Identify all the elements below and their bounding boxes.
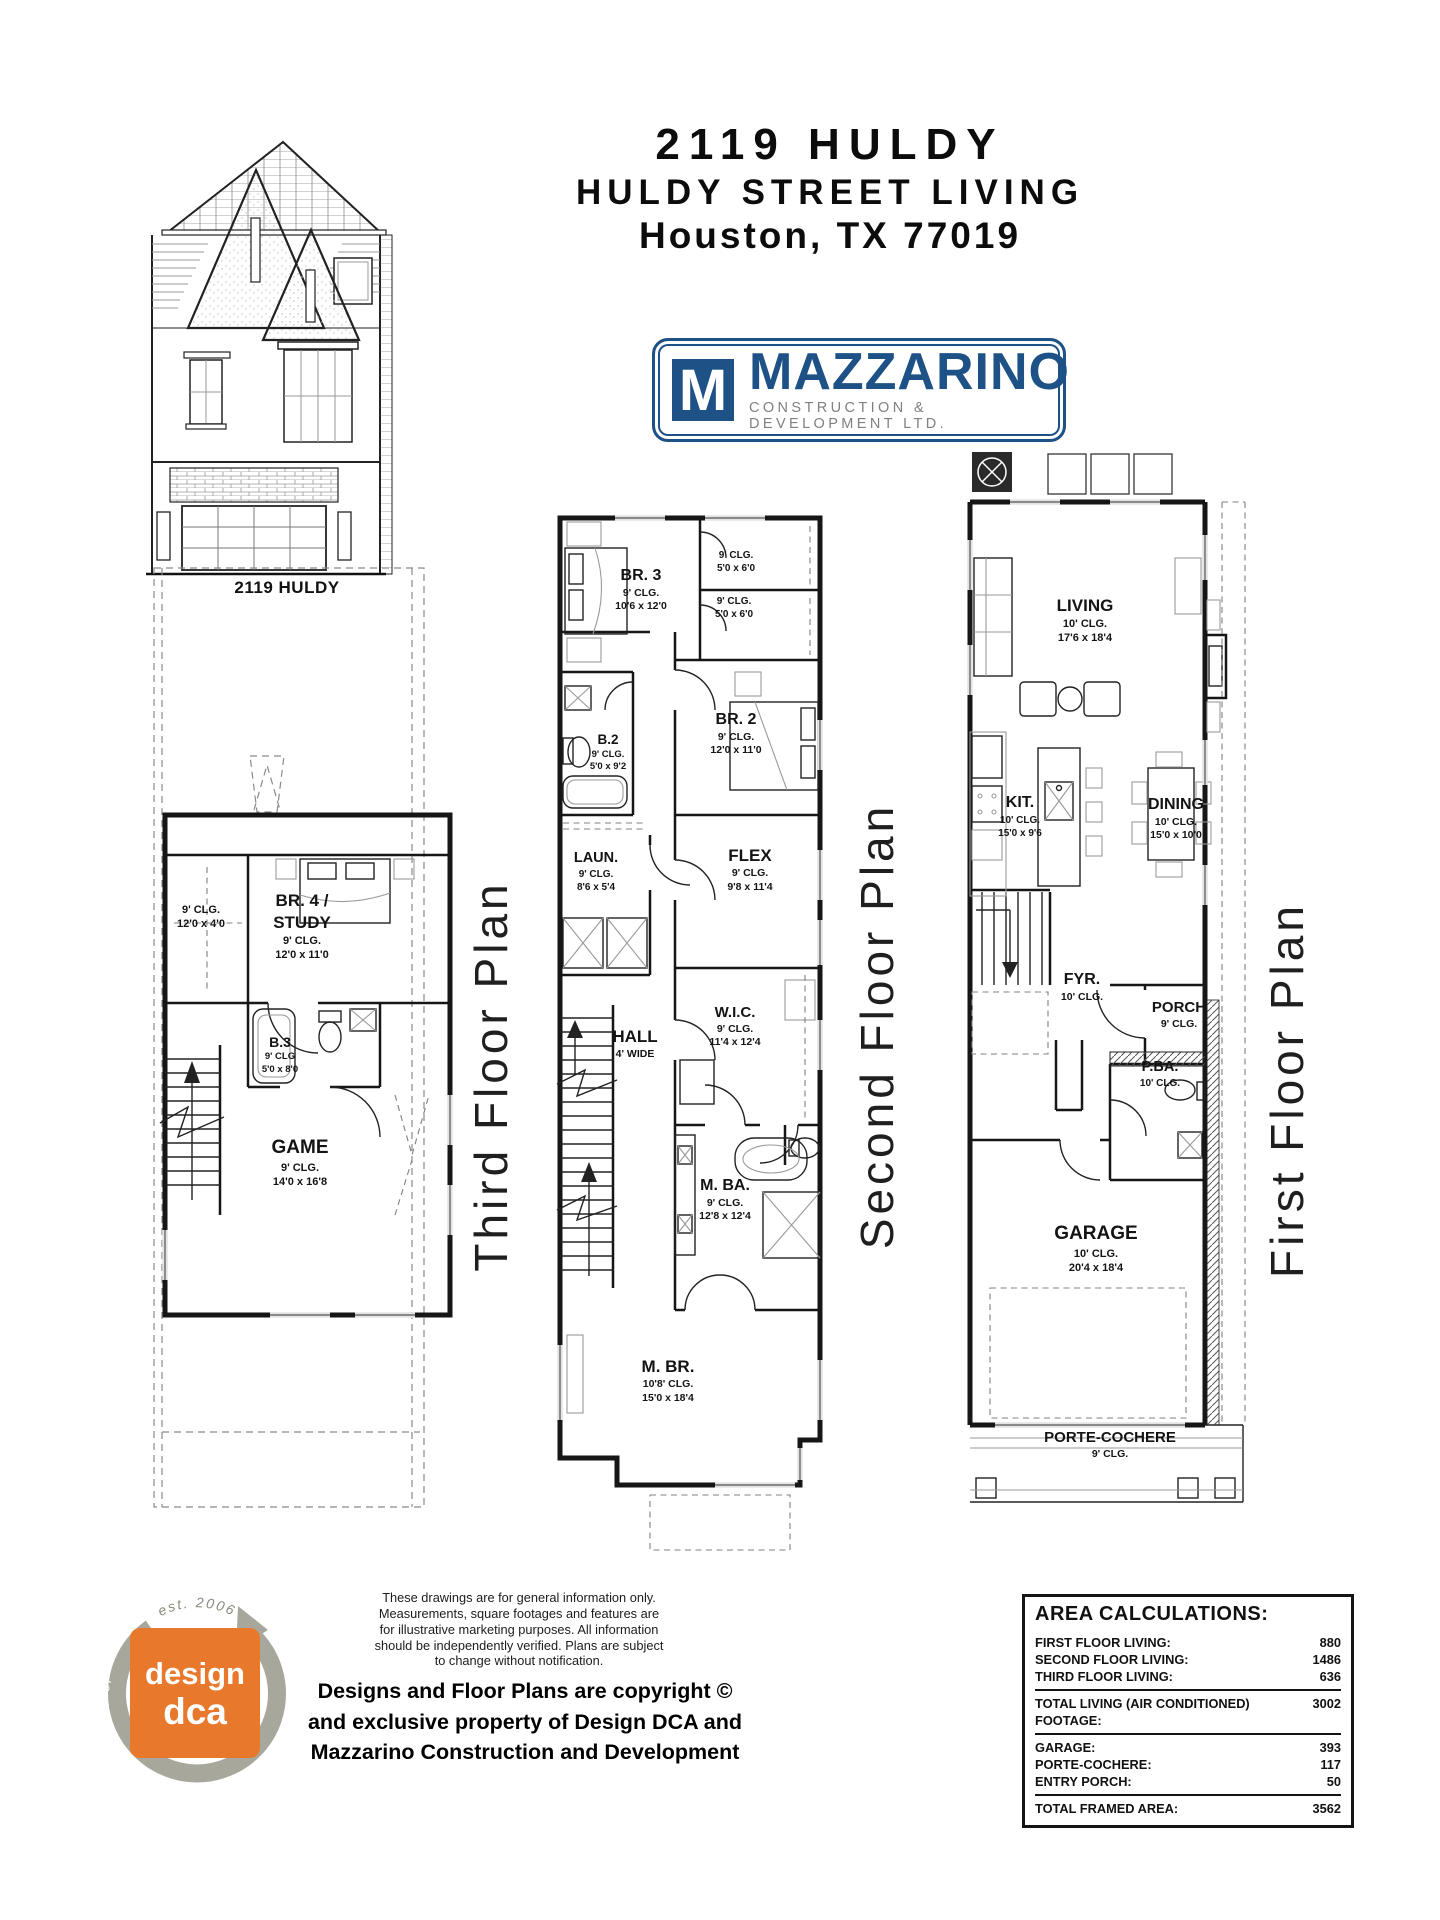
- room-clg: 9' CLG.: [252, 934, 352, 948]
- room-clg: 10' CLG.: [1046, 991, 1118, 1005]
- room-clg: 9' CLG.: [700, 595, 768, 608]
- design-dca-logo: est. 2006 design dca design matters: [92, 1578, 302, 1814]
- copyright-line: Designs and Floor Plans are copyright ©: [282, 1676, 768, 1707]
- room-clg: 9' CLG.: [598, 587, 684, 601]
- room-clg: 10' CLG.: [1038, 1247, 1154, 1261]
- house-elevation-drawing: [128, 112, 394, 580]
- room-clg: 9' CLG.: [691, 1023, 779, 1037]
- row-label: THIRD FLOOR LIVING:: [1035, 1668, 1173, 1685]
- row-value: 3002: [1313, 1695, 1341, 1729]
- room-name: LAUN.: [562, 849, 630, 868]
- room-name: PORCH: [1140, 998, 1218, 1018]
- row-label: TOTAL LIVING (AIR CONDITIONED) FOOTAGE:: [1035, 1695, 1313, 1729]
- row-value: 1486: [1313, 1651, 1341, 1668]
- room-dims: 12'0 x 4'0: [168, 917, 234, 931]
- copyright-text: Designs and Floor Plans are copyright © …: [282, 1676, 768, 1768]
- room-dims: 5'0 x 6'0: [700, 608, 768, 621]
- row-label: PORTE-COCHERE:: [1035, 1756, 1152, 1773]
- room-name: BR. 4 /: [252, 890, 352, 912]
- room-label-br4-study: BR. 4 / STUDY 9' CLG. 12'0 x 11'0: [252, 890, 352, 963]
- room-dims: 4' WIDE: [601, 1048, 669, 1062]
- subtitle: HULDY STREET LIVING: [480, 171, 1180, 215]
- room-label-laundry: LAUN. 9' CLG. 8'6 x 5'4: [562, 849, 630, 894]
- room-name: P.BA.: [1124, 1058, 1196, 1077]
- room-label-wic: W.I.C. 9' CLG. 11'4 x 12'4: [691, 1003, 779, 1050]
- second-floor-plan-title: Second Floor Plan: [850, 726, 906, 1326]
- address-title: 2119 HULDY: [480, 120, 1180, 171]
- room-dims: 8'6 x 5'4: [562, 881, 630, 894]
- room-dims: 15'0 x 10'0: [1128, 829, 1224, 843]
- svg-text:est. 2006: est. 2006: [155, 1594, 239, 1619]
- room-clg: 9' CLG.: [692, 731, 780, 745]
- table-row: TOTAL FRAMED AREA: 3562: [1035, 1800, 1341, 1817]
- room-name: PORTE-COCHERE: [1028, 1428, 1192, 1448]
- third-floor-plan-drawing: [150, 655, 460, 1345]
- dca-est-text: est. 2006: [155, 1594, 239, 1619]
- room-name: STUDY: [252, 912, 352, 934]
- room-name: FYR.: [1046, 970, 1118, 991]
- room-name: HALL: [601, 1026, 669, 1048]
- row-label: ENTRY PORCH:: [1035, 1773, 1132, 1790]
- room-clg: 9' CLG.: [580, 749, 636, 761]
- room-dims: 9'8 x 11'4: [706, 881, 794, 895]
- floor-plan-sheet: 2119 HULDY HULDY STREET LIVING Houston, …: [0, 0, 1440, 1920]
- room-clg: 9' CLG.: [702, 549, 770, 562]
- disclaimer-line: Measurements, square footages and featur…: [368, 1606, 670, 1622]
- table-row: GARAGE: 393: [1035, 1739, 1341, 1756]
- room-dims: 17'6 x 18'4: [1038, 631, 1132, 645]
- room-label-porch: PORCH 9' CLG.: [1140, 998, 1218, 1031]
- city-line: Houston, TX 77019: [480, 214, 1180, 258]
- room-name: B.2: [580, 731, 636, 749]
- room-clg: 9' CLG.: [168, 903, 234, 917]
- room-label-mbr: M. BR. 10'8' CLG. 15'0 x 18'4: [620, 1356, 716, 1405]
- room-label-flex: FLEX 9' CLG. 9'8 x 11'4: [706, 845, 794, 894]
- room-name: BR. 3: [598, 566, 684, 587]
- room-label-dining: DINING 10' CLG. 15'0 x 10'0: [1128, 795, 1224, 843]
- room-name: LIVING: [1038, 595, 1132, 617]
- room-label-b3: B.3 9' CLG 5'0 x 8'0: [248, 1033, 312, 1076]
- room-name: GAME: [240, 1136, 360, 1161]
- room-label-attic: 9' CLG. 12'0 x 4'0: [168, 903, 234, 932]
- table-separator: [1035, 1733, 1341, 1735]
- room-clg: 10' CLG.: [1038, 617, 1132, 631]
- room-clg: 10'8' CLG.: [620, 1378, 716, 1392]
- row-value: 3562: [1313, 1800, 1341, 1817]
- table-separator: [1035, 1794, 1341, 1796]
- disclaimer-line: should be independently verified. Plans …: [368, 1638, 670, 1654]
- room-label-mba: M. BA. 9' CLG. 12'8 x 12'4: [681, 1176, 769, 1224]
- room-clg: 9' CLG.: [562, 868, 630, 881]
- room-dims: 12'0 x 11'0: [692, 744, 780, 758]
- room-clg: 9' CLG.: [240, 1161, 360, 1175]
- row-label: TOTAL FRAMED AREA:: [1035, 1800, 1178, 1817]
- row-label: SECOND FLOOR LIVING:: [1035, 1651, 1189, 1668]
- room-label-garage: GARAGE 10' CLG. 20'4 x 18'4: [1038, 1222, 1154, 1275]
- dca-word1: design: [145, 1656, 245, 1691]
- dca-word2: dca: [163, 1691, 227, 1732]
- third-floor-plan-title: Third Floor Plan: [464, 776, 520, 1376]
- copyright-line: Mazzarino Construction and Development: [282, 1737, 768, 1768]
- room-clg: 9' CLG.: [1028, 1448, 1192, 1462]
- room-clg: 9' CLG: [248, 1051, 312, 1063]
- room-label-hall: HALL 4' WIDE: [601, 1026, 669, 1062]
- room-dims: 12'8 x 12'4: [681, 1210, 769, 1224]
- room-name: FLEX: [706, 845, 794, 867]
- room-dims: 20'4 x 18'4: [1038, 1261, 1154, 1275]
- room-label-closet-a: 9' CLG. 5'0 x 6'0: [702, 549, 770, 575]
- room-label-br2: BR. 2 9' CLG. 12'0 x 11'0: [692, 710, 780, 758]
- room-name: M. BR.: [620, 1356, 716, 1378]
- room-label-br3: BR. 3 9' CLG. 10'6 x 12'0: [598, 566, 684, 614]
- table-row: SECOND FLOOR LIVING: 1486: [1035, 1651, 1341, 1668]
- room-label-porte-cochere: PORTE-COCHERE 9' CLG.: [1028, 1428, 1192, 1461]
- room-name: B.3: [248, 1033, 312, 1051]
- room-label-game: GAME 9' CLG. 14'0 x 16'8: [240, 1136, 360, 1189]
- row-value: 50: [1327, 1773, 1341, 1790]
- logo-monogram-icon: M: [667, 354, 739, 426]
- row-value: 880: [1320, 1634, 1341, 1651]
- table-row: FIRST FLOOR LIVING: 880: [1035, 1634, 1341, 1651]
- room-dims: 10'6 x 12'0: [598, 600, 684, 614]
- table-row: ENTRY PORCH: 50: [1035, 1773, 1341, 1790]
- table-separator: [1035, 1689, 1341, 1691]
- room-name: W.I.C.: [691, 1003, 779, 1023]
- title-block: 2119 HULDY HULDY STREET LIVING Houston, …: [480, 120, 1180, 259]
- disclaimer-text: These drawings are for general informati…: [368, 1590, 670, 1669]
- disclaimer-line: for illustrative marketing purposes. All…: [368, 1622, 670, 1638]
- room-label-foyer: FYR. 10' CLG.: [1046, 970, 1118, 1004]
- disclaimer-line: to change without notification.: [368, 1653, 670, 1669]
- room-clg: 10' CLG.: [1128, 816, 1224, 830]
- room-dims: 15'0 x 9'6: [984, 827, 1056, 840]
- room-dims: 14'0 x 16'8: [240, 1175, 360, 1189]
- room-clg: 9' CLG.: [681, 1197, 769, 1211]
- room-dims: 15'0 x 18'4: [620, 1392, 716, 1406]
- room-dims: 12'0 x 11'0: [252, 948, 352, 962]
- room-dims: 5'0 x 9'2: [580, 761, 636, 773]
- logo-name: MAZZARINO: [749, 348, 1070, 397]
- disclaimer-line: These drawings are for general informati…: [368, 1590, 670, 1606]
- room-name: M. BA.: [681, 1176, 769, 1197]
- room-label-powder-bath: P.BA. 10' CLG.: [1124, 1058, 1196, 1090]
- room-clg: 9' CLG.: [706, 867, 794, 881]
- row-label: FIRST FLOOR LIVING:: [1035, 1634, 1171, 1651]
- room-name: DINING: [1128, 795, 1224, 816]
- room-name: BR. 2: [692, 710, 780, 731]
- room-dims: 5'0 x 8'0: [248, 1064, 312, 1076]
- area-calculations-table: AREA CALCULATIONS: FIRST FLOOR LIVING: 8…: [1022, 1594, 1354, 1828]
- room-dims: 11'4 x 12'4: [691, 1036, 779, 1050]
- room-label-closet-b: 9' CLG. 5'0 x 6'0: [700, 595, 768, 621]
- row-value: 393: [1320, 1739, 1341, 1756]
- room-dims: 5'0 x 6'0: [702, 562, 770, 575]
- room-name: KIT.: [984, 793, 1056, 814]
- room-clg: 9' CLG.: [1140, 1018, 1218, 1032]
- room-name: GARAGE: [1038, 1222, 1154, 1247]
- first-floor-plan-title: First Floor Plan: [1260, 790, 1316, 1390]
- row-value: 636: [1320, 1668, 1341, 1685]
- room-label-living: LIVING 10' CLG. 17'6 x 18'4: [1038, 595, 1132, 646]
- table-row: TOTAL LIVING (AIR CONDITIONED) FOOTAGE: …: [1035, 1695, 1341, 1729]
- row-value: 117: [1320, 1756, 1341, 1773]
- table-row: THIRD FLOOR LIVING: 636: [1035, 1668, 1341, 1685]
- copyright-line: and exclusive property of Design DCA and: [282, 1707, 768, 1738]
- room-clg: 10' CLG.: [1124, 1077, 1196, 1090]
- room-clg: 10' CLG.: [984, 814, 1056, 827]
- room-label-b2: B.2 9' CLG. 5'0 x 9'2: [580, 731, 636, 773]
- table-row: PORTE-COCHERE: 117: [1035, 1756, 1341, 1773]
- row-label: GARAGE:: [1035, 1739, 1095, 1756]
- room-label-kitchen: KIT. 10' CLG. 15'0 x 9'6: [984, 793, 1056, 840]
- area-calculations-title: AREA CALCULATIONS:: [1035, 1603, 1341, 1626]
